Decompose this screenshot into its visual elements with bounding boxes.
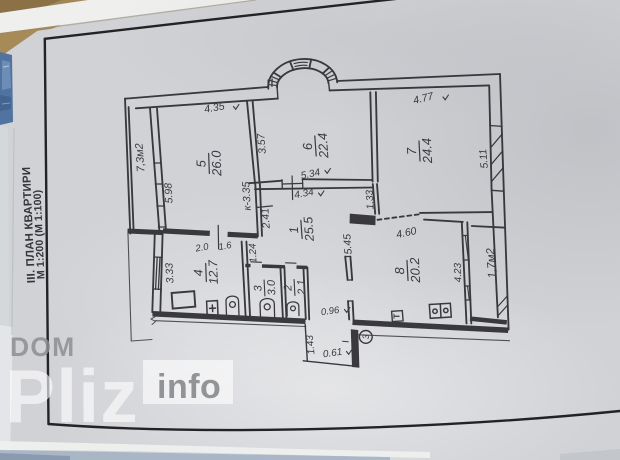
svg-text:info: info	[157, 368, 221, 406]
svg-text:2.1: 2.1	[296, 279, 309, 296]
svg-text:26.0: 26.0	[209, 150, 225, 178]
svg-text:25.5: 25.5	[301, 216, 317, 242]
svg-text:1,7м2: 1,7м2	[485, 247, 499, 279]
svg-text:3: 3	[361, 334, 371, 339]
svg-text:5.45: 5.45	[341, 233, 354, 254]
svg-text:5.11: 5.11	[477, 148, 491, 169]
svg-text:2.41: 2.41	[259, 208, 272, 230]
svg-text:3.0: 3.0	[266, 279, 279, 296]
svg-text:к-3.35: к-3.35	[240, 181, 254, 211]
svg-text:4: 4	[191, 269, 205, 276]
svg-text:Pliz: Pliz	[5, 354, 139, 438]
svg-text:1.33: 1.33	[364, 189, 376, 209]
svg-text:12.7: 12.7	[206, 259, 221, 285]
svg-text:1: 1	[287, 226, 301, 234]
svg-text:22.4: 22.4	[315, 132, 332, 159]
svg-text:5: 5	[193, 159, 208, 168]
svg-text:Т: Т	[392, 313, 402, 319]
svg-text:7,3м2: 7,3м2	[134, 143, 148, 173]
svg-text:2: 2	[282, 284, 294, 292]
svg-text:3.57: 3.57	[255, 132, 269, 155]
svg-text:5.98: 5.98	[162, 182, 175, 203]
svg-text:1.24: 1.24	[247, 243, 259, 263]
svg-text:4.23: 4.23	[453, 262, 465, 282]
svg-text:1.43: 1.43	[304, 334, 317, 355]
svg-text:24.4: 24.4	[419, 138, 435, 165]
svg-text:20.2: 20.2	[407, 256, 423, 284]
svg-text:3.33: 3.33	[163, 262, 176, 283]
